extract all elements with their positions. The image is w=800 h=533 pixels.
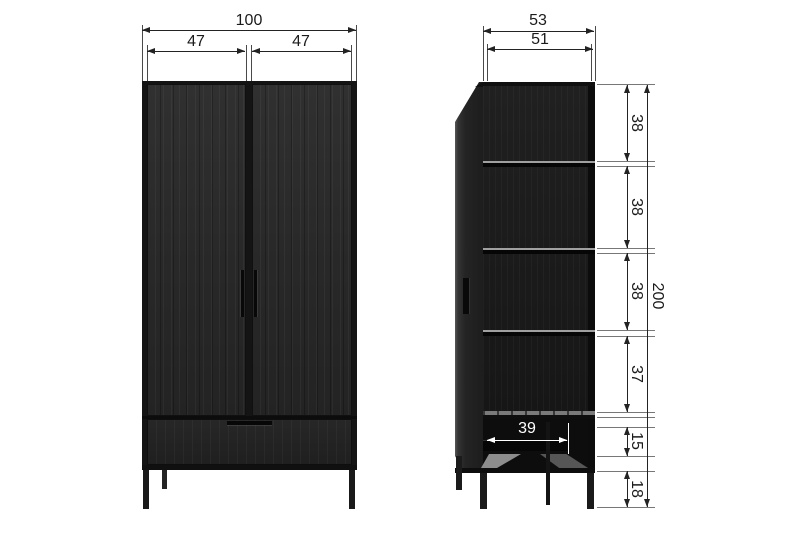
front-leg-left-rear (162, 470, 167, 489)
side-front-edge-panel (455, 82, 483, 473)
side-shelf-1 (483, 161, 595, 167)
front-drawer (147, 419, 352, 465)
side-shelf-2 (483, 248, 595, 254)
dimension-label-left-door-width: 47 (166, 34, 226, 50)
side-drawer-bottom-panel (483, 440, 568, 451)
extension-line (595, 26, 596, 81)
front-right-door (252, 84, 352, 416)
right-door-handle (254, 270, 257, 317)
dimension-label-depth-outer: 53 (508, 13, 568, 29)
extension-line (597, 507, 655, 508)
dimension-line-depth-inner (487, 49, 593, 50)
extension-line (356, 25, 357, 81)
dimension-label-section-5: 15 (628, 421, 644, 461)
dimension-label-bottom-opening-width: 39 (507, 421, 547, 437)
side-door-handle (463, 278, 469, 314)
dimension-label-section-3: 38 (628, 271, 644, 311)
side-view: 39 (455, 82, 595, 509)
extension-line (351, 45, 352, 81)
side-leg-left (480, 473, 487, 509)
dimension-line-bottom-opening-width (487, 440, 567, 441)
extension-line (142, 25, 143, 81)
dimension-line-left-door-width (147, 51, 245, 52)
dimension-label-section-4: 37 (628, 354, 644, 394)
dimension-line-right-door-width (252, 51, 351, 52)
drawer-handle (227, 421, 272, 425)
side-shelf-3 (483, 330, 595, 336)
dimension-label-right-door-width: 47 (271, 34, 331, 50)
dimension-label-total-height: 200 (649, 276, 665, 316)
dimension-label-section-1: 38 (628, 103, 644, 143)
front-view (142, 81, 357, 470)
left-door-handle (241, 270, 244, 317)
dimension-line-front-total-width (142, 30, 356, 31)
front-leg-right (349, 470, 355, 509)
dimension-label-section-2: 38 (628, 187, 644, 227)
side-bottom-frame (455, 468, 595, 473)
extension-line-bottom-opening (568, 423, 569, 454)
front-bottom-rail (142, 465, 357, 470)
wardrobe-dimension-diagram: 100 47 47 39 53 51 (0, 0, 800, 533)
dimension-label-depth-inner: 51 (510, 32, 570, 48)
extension-line (246, 45, 247, 81)
side-leg-front (456, 456, 462, 490)
dimension-label-front-total-width: 100 (219, 13, 279, 29)
side-leg-right (587, 473, 594, 509)
side-drawer-rail (483, 411, 595, 419)
front-left-door (147, 84, 246, 416)
front-leg-left (143, 470, 149, 509)
extension-line (483, 26, 484, 81)
dimension-label-section-6: 18 (628, 469, 644, 509)
dimension-line-total-height (647, 85, 648, 507)
